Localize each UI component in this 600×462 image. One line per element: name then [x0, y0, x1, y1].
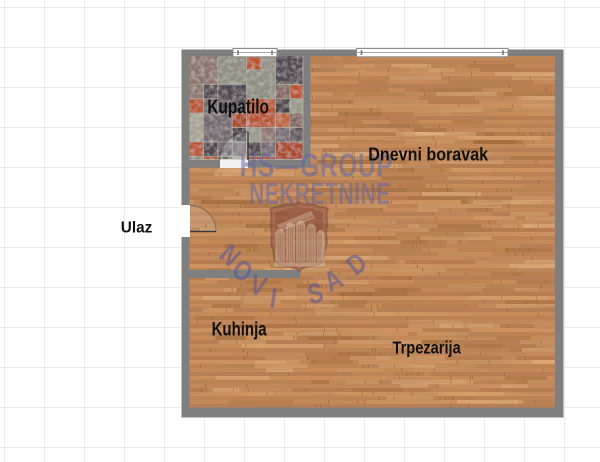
svg-text:NEKRETNINE: NEKRETNINE — [249, 176, 391, 211]
svg-text:Trpezarija: Trpezarija — [393, 339, 461, 357]
svg-text:Dnevni boravak: Dnevni boravak — [368, 143, 488, 164]
svg-text:Kupatilo: Kupatilo — [207, 95, 269, 117]
svg-text:Ulaz: Ulaz — [121, 220, 153, 237]
svg-text:Kuhinja: Kuhinja — [212, 317, 267, 339]
